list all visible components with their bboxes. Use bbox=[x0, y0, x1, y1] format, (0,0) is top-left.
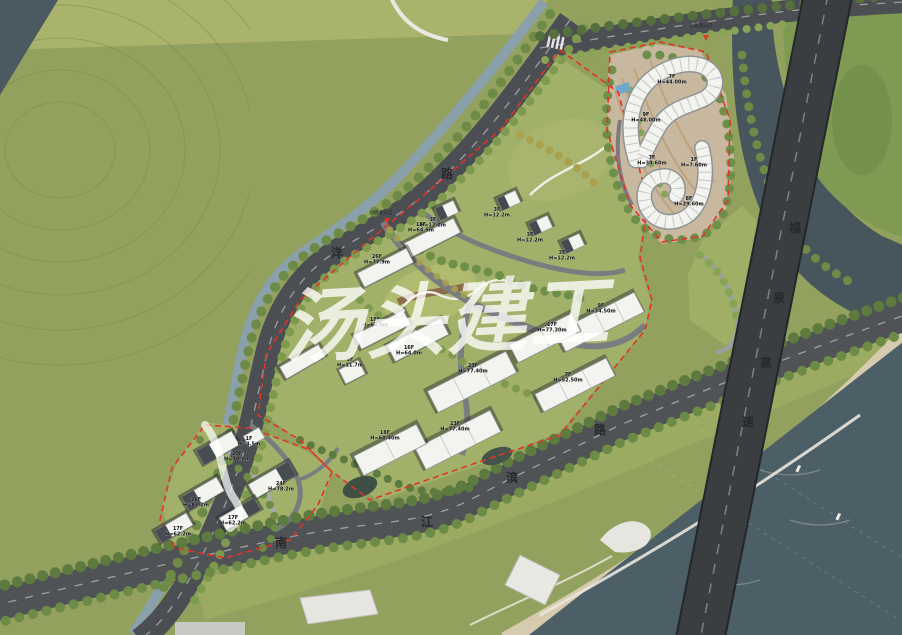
road-yang-char: 路 bbox=[441, 166, 454, 181]
masterplan-image: 路洋南江滨路福泉高速 7FH=44.00m9FH=48.00m7FH=34.60… bbox=[0, 0, 902, 635]
south-parking bbox=[175, 622, 245, 635]
road-fuquan-expressway-char: 速 bbox=[742, 414, 754, 429]
watermark-text: 汤头建工 bbox=[280, 264, 619, 375]
entrance-label: 小区次入口 bbox=[690, 22, 713, 29]
road-nanjiangbin-char: 江 bbox=[421, 514, 433, 529]
road-fuquan-expressway-char: 泉 bbox=[773, 290, 786, 305]
masterplan-svg: 路洋南江滨路福泉高速 7FH=44.00m9FH=48.00m7FH=34.60… bbox=[0, 0, 902, 635]
road-nanjiangbin-char: 路 bbox=[594, 422, 607, 437]
road-nanjiangbin-char: 滨 bbox=[506, 470, 518, 485]
road-fuquan-expressway-char: 福 bbox=[788, 220, 801, 235]
island-trees bbox=[832, 65, 892, 175]
road-yang-char: 洋 bbox=[331, 245, 343, 260]
entrance-label: 小区主入口 bbox=[370, 209, 393, 216]
road-fuquan-expressway-char: 高 bbox=[760, 355, 772, 370]
road-nanjiangbin-char: 南 bbox=[275, 535, 287, 550]
